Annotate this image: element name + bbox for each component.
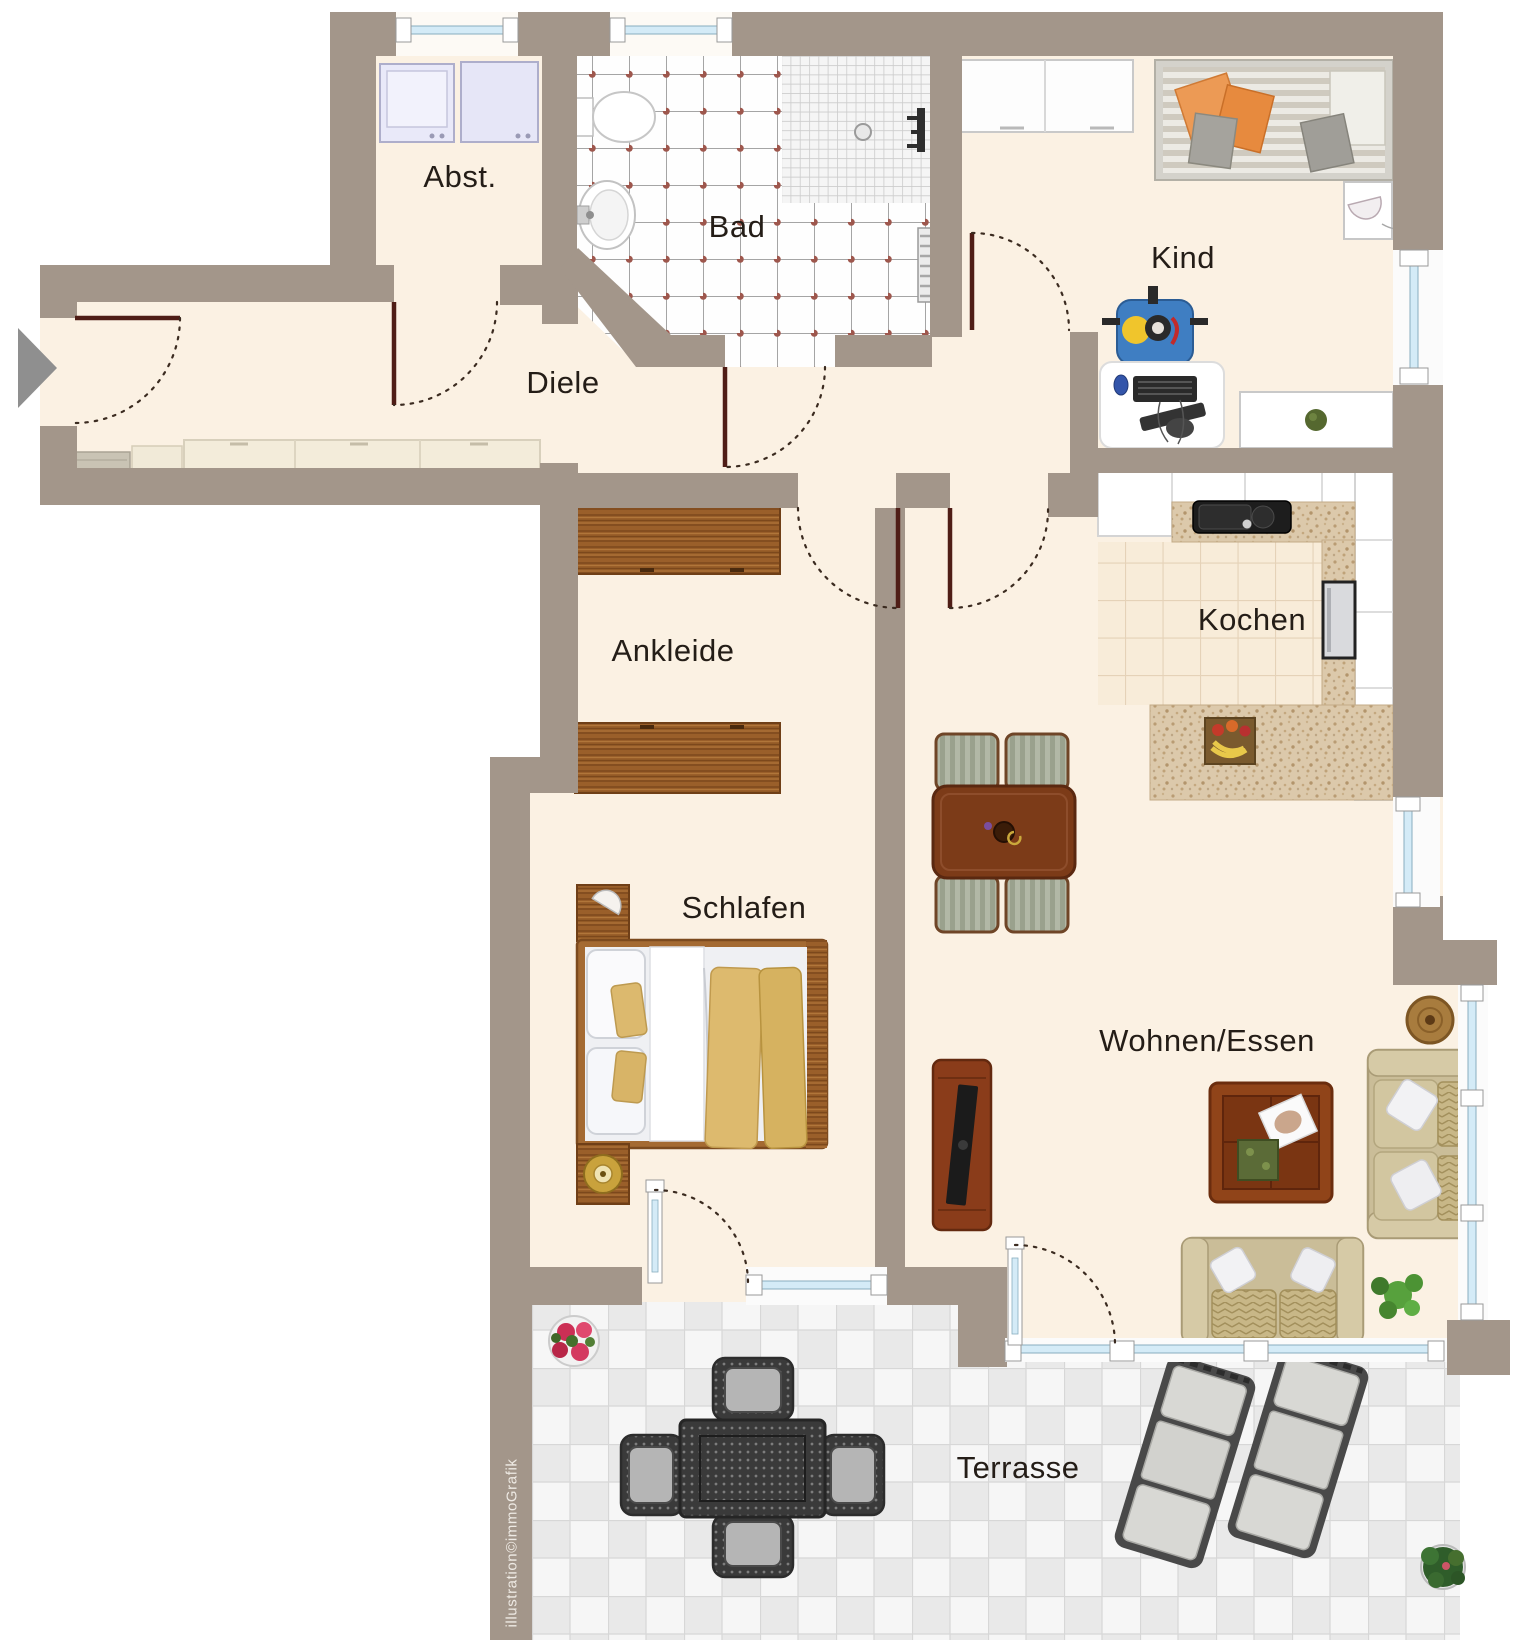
room-label-abst: Abst.: [423, 159, 496, 195]
stove: [1323, 582, 1355, 658]
room-label-bad: Bad: [709, 209, 766, 245]
kind-desk: [1100, 362, 1224, 448]
window-schlafen-bottom: [746, 1267, 887, 1305]
floor-plan-drawing: [0, 0, 1515, 1648]
watermark-credit: illustration©immoGrafik: [504, 1458, 521, 1627]
window-wall-living-right: [1458, 985, 1488, 1320]
window-kind: [1393, 250, 1443, 385]
room-label-diele: Diele: [526, 365, 599, 401]
kind-nightstand: [1344, 182, 1400, 239]
tv-board: [933, 1060, 991, 1230]
shower-drain: [855, 124, 871, 140]
ankleide-wardrobe-bottom: [575, 723, 780, 793]
schlafen-nightstand-bottom: [577, 1144, 629, 1204]
kind-sideboard: [1240, 392, 1393, 448]
coffee-table: [1210, 1083, 1332, 1202]
kind-bed: [1155, 60, 1393, 180]
sofa-bottom: [1182, 1238, 1363, 1343]
ankleide-wardrobe-top: [575, 507, 780, 574]
room-label-kochen: Kochen: [1198, 602, 1306, 638]
room-label-ankleide: Ankleide: [612, 633, 735, 669]
flower-pot: [549, 1316, 599, 1366]
room-label-wohnen-essen: Wohnen/Essen: [1099, 1023, 1315, 1059]
window-abst: [396, 12, 518, 56]
window-living-bottom: [1005, 1338, 1447, 1362]
window-bad: [610, 12, 732, 56]
room-label-terrasse: Terrasse: [957, 1450, 1080, 1486]
sofa-right: [1368, 1050, 1472, 1238]
kitchen-sink: [1193, 501, 1291, 533]
floor-plan: Abst. Bad Kind Diele Ankleide Kochen Sch…: [0, 0, 1515, 1648]
window-kitchen: [1393, 797, 1440, 907]
schlafen-bed: [577, 940, 827, 1149]
terrace-plant: [1421, 1545, 1465, 1589]
schlafen-nightstand-top: [577, 885, 629, 941]
fruit-bowl: [1205, 718, 1255, 764]
kind-wardrobe: [957, 60, 1133, 132]
toilet: [575, 92, 655, 142]
room-label-kind: Kind: [1151, 240, 1215, 276]
room-label-schlafen: Schlafen: [682, 890, 807, 926]
round-rug: [1407, 997, 1453, 1043]
dining-table: [933, 786, 1075, 878]
